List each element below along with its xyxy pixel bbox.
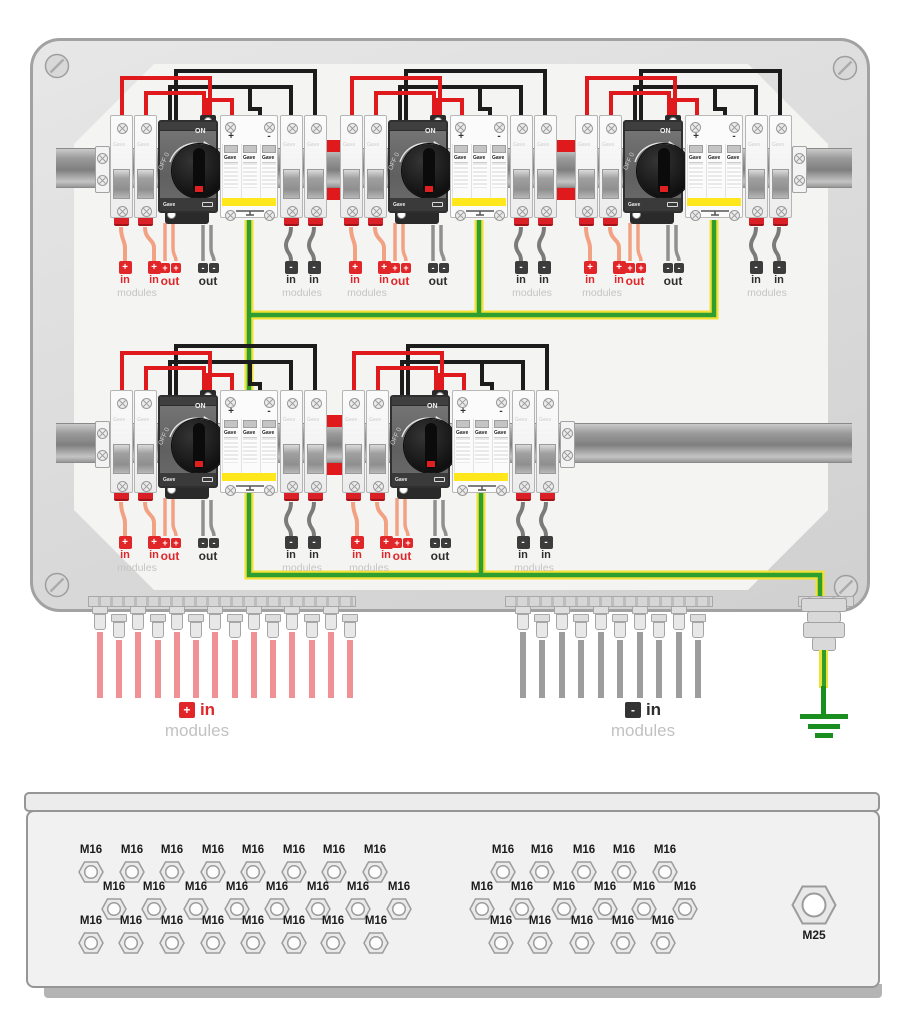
- spd-rating-text: [494, 437, 508, 463]
- terminal-positive: +: [171, 263, 181, 273]
- switch-brand: Gave: [395, 477, 407, 483]
- spd-brand: Gave: [688, 155, 704, 161]
- screw-icon: [496, 483, 507, 494]
- spd-brand: Gave: [261, 155, 277, 161]
- screw-icon: [97, 428, 108, 439]
- fuse-terminal-cap: [516, 493, 531, 501]
- screw-icon: [371, 204, 382, 215]
- label-modules: modules: [107, 562, 167, 574]
- fuse-terminal-cap: [138, 218, 153, 226]
- m16-label: M16: [71, 915, 111, 927]
- fuse-brand: Gave: [344, 417, 363, 423]
- m16-label: M16: [624, 881, 664, 893]
- gland-body: [132, 614, 144, 630]
- module-cable: [539, 640, 545, 698]
- screw-icon: [287, 479, 298, 490]
- gland-m16-icon: [320, 932, 346, 954]
- switch-on-label: ON: [425, 128, 436, 135]
- screw-icon: [141, 479, 152, 490]
- surge-protector: +-GaveGaveGave: [220, 115, 278, 218]
- terminal-positive: +: [403, 538, 413, 548]
- dc-disconnect-switch: ONOFF 0Gave: [158, 395, 218, 488]
- m16-label: M16: [603, 915, 643, 927]
- m16-label: M16: [604, 844, 644, 856]
- screw-icon: [606, 204, 617, 215]
- screw-icon: [541, 206, 552, 217]
- screw-icon: [264, 210, 275, 221]
- terminal-negative: -: [209, 538, 219, 548]
- fuse-terminal-cap: [284, 493, 299, 501]
- screw-icon: [264, 395, 275, 406]
- cable-gland: [304, 614, 320, 638]
- dc-disconnect-switch: ONOFF 0Gave: [158, 120, 218, 213]
- gland-m16-icon: [281, 932, 307, 954]
- surge-protector: +-GaveGaveGave: [220, 390, 278, 493]
- spd-plus-label: +: [458, 406, 468, 417]
- cable-gland: [150, 614, 166, 638]
- terminal-positive: +: [625, 263, 635, 273]
- m16-label: M16: [94, 881, 134, 893]
- corner-screw-icon: [44, 572, 70, 598]
- m16-label: M16: [233, 915, 273, 927]
- screw-icon: [373, 479, 384, 490]
- switch-top-strip: [390, 122, 446, 131]
- cable-gland: [612, 614, 628, 638]
- screw-icon: [543, 481, 554, 492]
- fuse-holder-positive: Gave: [134, 390, 157, 493]
- label-modules: modules: [272, 287, 332, 299]
- fuse-terminal-cap: [540, 493, 555, 501]
- cable-gland: [130, 606, 146, 630]
- gland-cap: [573, 614, 589, 622]
- rotary-knob: [637, 144, 691, 198]
- screw-icon: [264, 208, 275, 219]
- screw-icon: [141, 398, 152, 409]
- terminal-negative: -: [517, 536, 530, 549]
- screw-icon: [141, 481, 152, 492]
- screw-icon: [117, 481, 128, 492]
- gland-body: [673, 614, 685, 630]
- m16-label: M16: [355, 844, 395, 856]
- spd-indicator-window: [454, 145, 468, 153]
- knob-indicator: [427, 461, 435, 467]
- terminal-positive: +: [636, 263, 646, 273]
- gland-body: [556, 614, 568, 630]
- spd-earth-icon: [465, 208, 495, 219]
- module-cable: [174, 632, 180, 698]
- screw-icon: [517, 123, 528, 134]
- m16-label: M16: [134, 881, 174, 893]
- spd-indicator-window: [262, 420, 276, 428]
- screw-icon: [349, 479, 360, 490]
- screw-icon: [582, 204, 593, 215]
- label-out-positive: out: [153, 549, 187, 563]
- knob-indicator: [660, 186, 668, 192]
- fuse-holder-negative: Gave: [534, 115, 557, 218]
- terminal-negative: -: [663, 263, 673, 273]
- busbar-sliver: [327, 415, 343, 427]
- spd-minus-label: -: [264, 406, 274, 417]
- m16-label: M16: [585, 881, 625, 893]
- cable-gland: [265, 614, 281, 638]
- spd-rating-text: [473, 162, 487, 188]
- fuse-window: [137, 169, 154, 199]
- label-out-negative: out: [656, 274, 690, 288]
- rail-end-bracket: [792, 146, 807, 193]
- module-cable: [328, 632, 334, 698]
- screw-icon: [519, 481, 530, 492]
- gland-body: [171, 614, 183, 630]
- fuse-window: [369, 444, 386, 474]
- screw-icon: [562, 450, 573, 461]
- busbar-sliver: [327, 188, 341, 200]
- screw-icon: [347, 121, 358, 132]
- terminal-positive: +: [148, 536, 161, 549]
- spd-module: Gave: [471, 144, 488, 198]
- spd-module: Gave: [490, 144, 507, 198]
- screw-icon: [371, 123, 382, 134]
- cable-gland: [111, 614, 127, 638]
- gland-m16-icon: [571, 861, 597, 883]
- switch-brand: Gave: [163, 477, 175, 483]
- spd-module: Gave: [241, 144, 258, 198]
- fuse-brand: Gave: [368, 417, 387, 423]
- screw-icon: [729, 208, 740, 219]
- label-out-positive: out: [618, 274, 652, 288]
- gland-m16-icon: [118, 932, 144, 954]
- spd-module: Gave: [260, 419, 277, 473]
- screw-icon: [373, 398, 384, 409]
- fuse-window: [343, 169, 360, 199]
- screw-icon: [496, 485, 507, 496]
- screw-icon: [606, 121, 617, 132]
- switch-top-strip: [160, 397, 216, 406]
- cable-gland: [554, 606, 570, 630]
- screw-icon: [752, 204, 763, 215]
- gland-m16-icon: [321, 861, 347, 883]
- module-cable: [97, 632, 103, 698]
- spd-rating-text: [708, 162, 722, 188]
- string-group: GaveGaveONOFF 0Gave+-GaveGaveGaveGaveGav…: [110, 390, 328, 582]
- gland-body: [536, 622, 548, 638]
- spd-module: Gave: [725, 144, 742, 198]
- spd-module: Gave: [492, 419, 509, 473]
- fuse-label: Gave: [112, 142, 131, 166]
- label-modules: modules: [339, 562, 399, 574]
- gland-cap: [554, 606, 570, 614]
- gland-m16-icon: [611, 861, 637, 883]
- screw-icon: [582, 123, 593, 134]
- terminal-negative: -: [209, 263, 219, 273]
- fuse-holder-positive: Gave: [364, 115, 387, 218]
- module-cable: [270, 640, 276, 698]
- gland-cap: [304, 614, 320, 622]
- gland-m16-icon: [527, 932, 553, 954]
- terminal-positive: +: [349, 261, 362, 274]
- switch-top-strip: [160, 122, 216, 131]
- earth-gland: [812, 637, 836, 651]
- switch-brand: Gave: [628, 202, 640, 208]
- fuse-label: Gave: [344, 417, 363, 441]
- gland-body: [190, 622, 202, 638]
- switch-symbol-icon: [202, 202, 213, 207]
- m16-label: M16: [274, 844, 314, 856]
- gland-cap: [284, 606, 300, 614]
- gland-m16-icon: [281, 861, 307, 883]
- screw-icon: [519, 479, 530, 490]
- label-in: in: [297, 274, 331, 286]
- fuse-holder-positive: Gave: [134, 115, 157, 218]
- screw-icon: [347, 204, 358, 215]
- fuse-brand: Gave: [577, 142, 596, 148]
- spd-module: Gave: [241, 419, 258, 473]
- module-cable: [637, 632, 643, 698]
- screw-icon: [519, 396, 530, 407]
- spd-brand: Gave: [242, 430, 258, 436]
- gland-cap: [651, 614, 667, 622]
- module-cable: [617, 640, 623, 698]
- switch-on-label: ON: [660, 128, 671, 135]
- screw-icon: [517, 121, 528, 132]
- earth-gland: [801, 598, 847, 612]
- cable-gland: [92, 606, 108, 630]
- module-cable: [676, 632, 682, 698]
- gland-m16-icon: [363, 932, 389, 954]
- screw-icon: [752, 123, 763, 134]
- screw-icon: [97, 450, 108, 461]
- fuse-holder-positive: Gave: [110, 115, 133, 218]
- label-modules: modules: [504, 562, 564, 574]
- spd-rating-text: [492, 162, 506, 188]
- screw-icon: [287, 204, 298, 215]
- screw-icon: [311, 396, 322, 407]
- switch-top-strip: [392, 397, 448, 406]
- gland-m16-icon: [240, 861, 266, 883]
- screw-icon: [752, 206, 763, 217]
- m16-label: M16: [152, 915, 192, 927]
- gland-m16-icon: [159, 932, 185, 954]
- spd-module: Gave: [452, 144, 469, 198]
- m16-label: M16: [502, 881, 542, 893]
- label-modules: modules: [737, 287, 797, 299]
- screw-icon: [117, 206, 128, 217]
- fuse-terminal-cap: [368, 218, 383, 226]
- switch-bottom-strip: Gave: [625, 198, 681, 211]
- fuse-terminal-cap: [603, 218, 618, 226]
- gland-body: [209, 614, 221, 630]
- fuse-window: [307, 444, 324, 474]
- gland-cap: [323, 606, 339, 614]
- gland-m16-icon: [119, 861, 145, 883]
- fuse-holder-negative: Gave: [512, 390, 535, 493]
- screw-icon: [311, 206, 322, 217]
- fuse-window: [113, 169, 130, 199]
- fuse-label: Gave: [601, 142, 620, 166]
- terminal-negative: -: [308, 536, 321, 549]
- terminal-negative: -: [773, 261, 786, 274]
- fuse-window: [137, 444, 154, 474]
- m16-label: M16: [112, 844, 152, 856]
- screw-icon: [141, 396, 152, 407]
- gland-body: [517, 614, 529, 630]
- earth-symbol-bar: [800, 714, 848, 719]
- fuse-brand: Gave: [306, 142, 325, 148]
- fuse-brand: Gave: [771, 142, 790, 148]
- m16-label: M16: [338, 881, 378, 893]
- fuse-label: Gave: [136, 417, 155, 441]
- gland-m16-icon: [650, 932, 676, 954]
- spd-module: Gave: [260, 144, 277, 198]
- fuse-terminal-cap: [579, 218, 594, 226]
- fuse-brand: Gave: [514, 417, 533, 423]
- gland-cap: [534, 614, 550, 622]
- gland-m16-icon: [78, 861, 104, 883]
- rotary-knob: [404, 419, 458, 473]
- fuse-terminal-cap: [370, 493, 385, 501]
- screw-icon: [287, 398, 298, 409]
- gland-m16-icon: [200, 861, 226, 883]
- cable-gland: [169, 606, 185, 630]
- string-group: GaveGaveONOFF 0Gave+-GaveGaveGaveGaveGav…: [575, 115, 793, 307]
- screw-icon: [494, 208, 505, 219]
- gland-body: [113, 622, 125, 638]
- fuse-window: [537, 169, 554, 199]
- fuse-holder-negative: Gave: [304, 115, 327, 218]
- fuse-window: [283, 169, 300, 199]
- spd-plus-label: +: [456, 131, 466, 142]
- busbar-sliver: [327, 463, 343, 475]
- label-modules: modules: [272, 562, 332, 574]
- string-group: GaveGaveONOFF 0Gave+-GaveGaveGaveGaveGav…: [340, 115, 558, 307]
- label-in: in: [529, 549, 563, 561]
- screw-icon: [517, 204, 528, 215]
- screw-icon: [287, 481, 298, 492]
- m16-label: M16: [313, 915, 353, 927]
- screw-icon: [543, 396, 554, 407]
- spd-brand: Gave: [223, 155, 239, 161]
- rotary-knob: [402, 144, 456, 198]
- m16-label: M16: [564, 844, 604, 856]
- fuse-holder-positive: Gave: [342, 390, 365, 493]
- spd-yellow-stripe: [452, 198, 506, 206]
- spd-indicator-window: [492, 145, 506, 153]
- gland-m16-icon: [529, 861, 555, 883]
- cable-gland: [671, 606, 687, 630]
- label-out-positive: out: [385, 549, 419, 563]
- m16-label: M16: [217, 881, 257, 893]
- busbar-sliver: [327, 140, 341, 152]
- switch-symbol-icon: [432, 202, 443, 207]
- fuse-holder-positive: Gave: [340, 115, 363, 218]
- screw-icon: [264, 120, 275, 131]
- spd-minus-label: -: [494, 131, 504, 142]
- negative-modules-text: modules: [578, 721, 708, 741]
- m16-label: M16: [152, 844, 192, 856]
- screw-icon: [347, 206, 358, 217]
- spd-rating-text: [262, 162, 276, 188]
- switch-symbol-icon: [667, 202, 678, 207]
- corner-screw-icon: [832, 55, 858, 81]
- m16-label: M16: [274, 915, 314, 927]
- spd-yellow-stripe: [222, 473, 276, 481]
- spd-indicator-window: [473, 145, 487, 153]
- spd-yellow-stripe: [222, 198, 276, 206]
- switch-bottom-strip: Gave: [160, 198, 216, 211]
- earth-symbol-bar: [808, 724, 840, 729]
- screw-icon: [794, 153, 805, 164]
- module-cable: [578, 640, 584, 698]
- gland-cap: [690, 614, 706, 622]
- label-modules: modules: [572, 287, 632, 299]
- m16-label: M16: [298, 881, 338, 893]
- fuse-brand: Gave: [366, 142, 385, 148]
- fuse-window: [345, 444, 362, 474]
- terminal-positive: +: [351, 536, 364, 549]
- terminal-positive: +: [390, 263, 400, 273]
- gland-body: [325, 614, 337, 630]
- gland-cap: [515, 606, 531, 614]
- screw-icon: [606, 206, 617, 217]
- fuse-terminal-cap: [538, 218, 553, 226]
- minus-terminal-icon: -: [625, 702, 641, 718]
- fuse-holder-negative: Gave: [536, 390, 559, 493]
- module-cable: [116, 640, 122, 698]
- gland-body: [614, 622, 626, 638]
- fuse-window: [113, 444, 130, 474]
- switch-bottom-strip: Gave: [392, 473, 448, 486]
- screw-icon: [141, 121, 152, 132]
- gland-body: [575, 622, 587, 638]
- fuse-brand: Gave: [538, 417, 557, 423]
- fuse-brand: Gave: [342, 142, 361, 148]
- gland-body: [229, 622, 241, 638]
- label-in: in: [297, 549, 331, 561]
- screw-icon: [141, 123, 152, 134]
- terminal-negative: -: [285, 536, 298, 549]
- spd-brand: Gave: [493, 430, 509, 436]
- spd-indicator-window: [475, 420, 489, 428]
- gland-cap: [150, 614, 166, 622]
- surge-protector: +-GaveGaveGave: [452, 390, 510, 493]
- label-out-negative: out: [191, 549, 225, 563]
- screw-icon: [690, 120, 701, 131]
- corner-screw-icon: [44, 53, 70, 79]
- fuse-terminal-cap: [138, 493, 153, 501]
- terminal-positive: +: [160, 263, 170, 273]
- spd-plus-label: +: [226, 131, 236, 142]
- spd-brand: Gave: [726, 155, 742, 161]
- switch-brand: Gave: [163, 202, 175, 208]
- screw-icon: [311, 479, 322, 490]
- spd-rating-text: [454, 162, 468, 188]
- fuse-window: [307, 169, 324, 199]
- fuse-terminal-cap: [284, 218, 299, 226]
- spd-module: Gave: [222, 419, 239, 473]
- label-out-positive: out: [383, 274, 417, 288]
- screw-icon: [543, 479, 554, 490]
- terminal-positive: +: [119, 261, 132, 274]
- gland-cap: [265, 614, 281, 622]
- screw-icon: [117, 398, 128, 409]
- m16-label: M16: [71, 844, 111, 856]
- switch-bottom-strip: Gave: [160, 473, 216, 486]
- module-cable: [155, 640, 161, 698]
- screw-icon: [776, 204, 787, 215]
- cable-gland: [188, 614, 204, 638]
- m16-label: M16: [481, 915, 521, 927]
- earth-gland: [803, 622, 845, 638]
- spd-earth-icon: [235, 483, 265, 494]
